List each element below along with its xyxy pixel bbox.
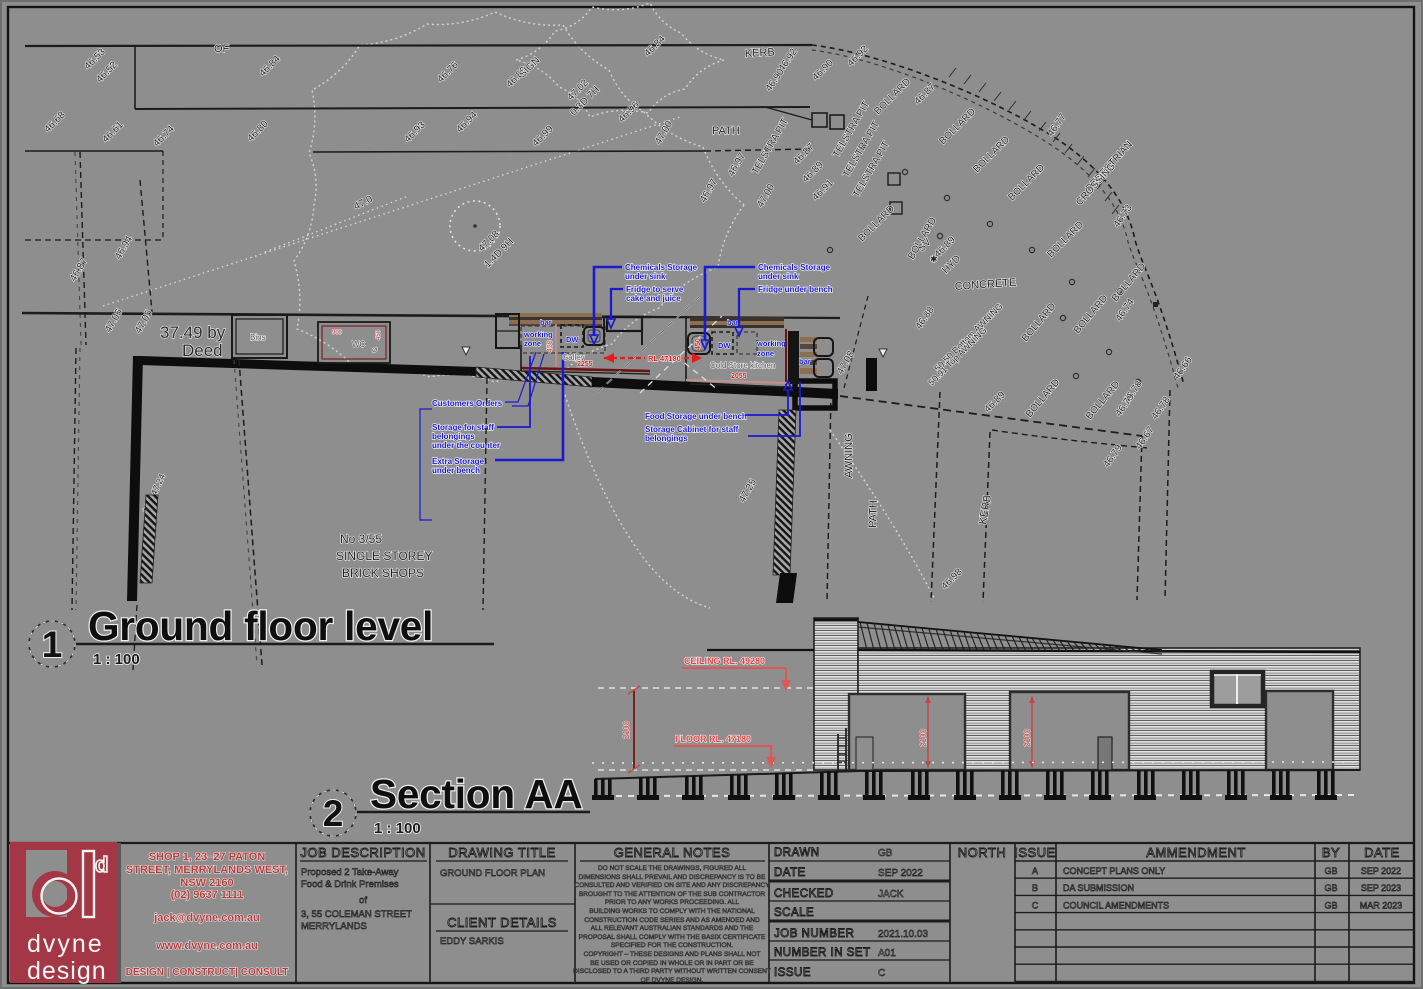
svg-text:AWNING: AWNING xyxy=(843,433,855,478)
svg-text:BY: BY xyxy=(1322,845,1340,860)
svg-text:STREET, MERRYLANDS WEST,: STREET, MERRYLANDS WEST, xyxy=(126,864,288,876)
svg-text:under bench: under bench xyxy=(432,466,480,475)
svg-text:NSW 2160: NSW 2160 xyxy=(180,877,233,889)
svg-text:bar: bar xyxy=(727,318,739,327)
svg-text:DATE: DATE xyxy=(774,867,806,879)
svg-text:of: of xyxy=(359,895,367,906)
svg-text:ALL RELEVANT AUSTRALIAN STANDA: ALL RELEVANT AUSTRALIAN STANDARDS AND TH… xyxy=(591,925,754,932)
svg-text:Section AA: Section AA xyxy=(370,771,583,817)
svg-text:Bins: Bins xyxy=(250,333,266,342)
svg-text:37.49 by: 37.49 by xyxy=(160,323,226,342)
svg-text:2021.10.03: 2021.10.03 xyxy=(878,929,928,940)
svg-text:Fridge under bench: Fridge under bench xyxy=(758,285,833,294)
svg-text:1 : 100: 1 : 100 xyxy=(93,651,140,668)
svg-text:PATH: PATH xyxy=(712,125,740,137)
svg-text:DIMENSIONS SHALL PREVAIL AND D: DIMENSIONS SHALL PREVAIL AND DISCREPANCY… xyxy=(579,874,766,881)
svg-text:CLIENT DETAILS: CLIENT DETAILS xyxy=(447,915,557,930)
svg-text:SEP 2022: SEP 2022 xyxy=(1361,866,1401,876)
svg-text:SEP 2022: SEP 2022 xyxy=(878,868,923,879)
svg-text:NORTH: NORTH xyxy=(958,845,1006,860)
svg-text:Extra Storage: Extra Storage xyxy=(432,457,485,466)
svg-text:B: B xyxy=(1032,883,1038,893)
svg-text:(02) 9637 1111: (02) 9637 1111 xyxy=(171,889,244,901)
svg-text:WC: WC xyxy=(352,340,366,349)
svg-text:450: 450 xyxy=(695,338,702,350)
svg-text:SCALE: SCALE xyxy=(774,907,814,919)
svg-text:PATH: PATH xyxy=(867,500,880,528)
svg-text:NUMBER IN SET: NUMBER IN SET xyxy=(774,947,871,959)
svg-text:BUILDING WORKS TO COMPLY WITH: BUILDING WORKS TO COMPLY WITH THE NATION… xyxy=(589,908,755,915)
svg-text:bar: bar xyxy=(799,357,811,366)
svg-text:SEP 2023: SEP 2023 xyxy=(1361,883,1401,893)
svg-text:2100: 2100 xyxy=(622,721,631,739)
svg-text:Storage for staff: Storage for staff xyxy=(432,423,494,432)
svg-text:dvyne: dvyne xyxy=(27,930,104,958)
svg-text:450: 450 xyxy=(547,340,554,352)
svg-text:JOB NUMBER: JOB NUMBER xyxy=(774,928,854,940)
svg-text:Customers Orders: Customers Orders xyxy=(432,399,503,408)
svg-text:GROUND FLOOR PLAN: GROUND FLOOR PLAN xyxy=(440,868,545,879)
svg-text:GB: GB xyxy=(1324,883,1337,893)
svg-text:A01: A01 xyxy=(878,948,896,959)
svg-text:Food Storage under bench: Food Storage under bench xyxy=(645,412,747,421)
svg-text:GB: GB xyxy=(878,848,893,859)
svg-text:SINGLE STOREY: SINGLE STOREY xyxy=(336,549,432,563)
svg-text:under the counter: under the counter xyxy=(432,441,500,450)
svg-text:900: 900 xyxy=(332,330,343,336)
svg-text:KERB: KERB xyxy=(745,46,776,60)
svg-text:EDDY SARKIS: EDDY SARKIS xyxy=(440,936,504,947)
svg-text:Storage Cabinet for staff: Storage Cabinet for staff xyxy=(645,425,739,434)
svg-text:PRIOR TO ANY WORKS PROCEEDING.: PRIOR TO ANY WORKS PROCEEDING. ALL xyxy=(605,899,740,906)
svg-text:under sink: under sink xyxy=(758,272,799,281)
svg-text:ISSUE: ISSUE xyxy=(774,967,811,979)
svg-text:2255: 2255 xyxy=(577,361,593,368)
svg-text:JACK: JACK xyxy=(878,889,904,900)
svg-text:CEILING RL. 49280: CEILING RL. 49280 xyxy=(684,656,765,666)
svg-text:450: 450 xyxy=(376,329,382,340)
svg-text:DATE: DATE xyxy=(1364,845,1400,860)
svg-text:OF: OF xyxy=(214,43,230,55)
svg-text:RL 47180: RL 47180 xyxy=(648,354,681,363)
svg-text:cake and juice: cake and juice xyxy=(626,294,681,303)
svg-text:Fridge to serve: Fridge to serve xyxy=(626,285,684,294)
svg-text:MAR 2023: MAR 2023 xyxy=(1360,900,1403,910)
svg-text:ISSUE: ISSUE xyxy=(1014,845,1056,860)
svg-text:Proposed 2 Take-Away: Proposed 2 Take-Away xyxy=(301,867,399,878)
svg-text:Ground floor level: Ground floor level xyxy=(88,603,433,649)
svg-text:1 : 100: 1 : 100 xyxy=(374,820,421,837)
svg-text:bar: bar xyxy=(540,318,552,327)
svg-text:design: design xyxy=(27,957,107,985)
svg-text:C: C xyxy=(1032,900,1039,910)
svg-text:CONSULTED AND VERIFIED ON SITE: CONSULTED AND VERIFIED ON SITE AND ANY D… xyxy=(574,882,770,889)
svg-text:under sink: under sink xyxy=(625,272,666,281)
svg-text:Chemicals Storage: Chemicals Storage xyxy=(758,263,831,272)
svg-text:CHECKED: CHECKED xyxy=(774,888,834,900)
svg-text:zone: zone xyxy=(757,349,774,358)
svg-text:belongings: belongings xyxy=(645,434,688,443)
svg-text:2100: 2100 xyxy=(1023,729,1032,747)
svg-text:BRICK SHOPS: BRICK SHOPS xyxy=(342,566,424,580)
svg-text:BE USED OR COPIED IN WHOLE OR: BE USED OR COPIED IN WHOLE OR IN PART OR… xyxy=(590,960,754,967)
svg-text:OF DVYNE DESIGN.: OF DVYNE DESIGN. xyxy=(641,977,704,984)
svg-text:No 3/55: No 3/55 xyxy=(340,532,382,546)
svg-text:working: working xyxy=(523,330,553,339)
svg-text:belongings: belongings xyxy=(432,432,475,441)
svg-text:FLOOR RL. 47180: FLOOR RL. 47180 xyxy=(675,734,751,744)
svg-text:A: A xyxy=(1032,866,1038,876)
svg-text:DISCLOSED TO A THIRD PARTY WIT: DISCLOSED TO A THIRD PARTY WITHOUT WRITT… xyxy=(573,968,771,975)
svg-text:Deed: Deed xyxy=(182,341,223,360)
svg-text:DRAWING TITLE: DRAWING TITLE xyxy=(448,845,556,860)
svg-text:Cold Store kitchen: Cold Store kitchen xyxy=(710,361,775,370)
svg-text:C: C xyxy=(878,968,885,979)
svg-text:1: 1 xyxy=(42,624,63,665)
svg-text:COUNCIL AMENDMENTS: COUNCIL AMENDMENTS xyxy=(1063,900,1169,910)
svg-text:MERRYLANDS: MERRYLANDS xyxy=(301,921,367,932)
svg-text:Food & Drink Premises: Food & Drink Premises xyxy=(301,879,399,890)
svg-text:DO NOT SCALE THE DRAWINGS, FIG: DO NOT SCALE THE DRAWINGS, FIGURED ALL xyxy=(598,865,747,872)
svg-text:Chemicals Storage: Chemicals Storage xyxy=(625,263,698,272)
svg-text:DA SUBMISSION: DA SUBMISSION xyxy=(1063,883,1134,893)
svg-text:www.dvyne.com.au: www.dvyne.com.au xyxy=(155,940,258,952)
svg-text:SHOP 1, 23–27 PATON: SHOP 1, 23–27 PATON xyxy=(149,851,266,863)
svg-text:SPECIFIED FOR THE CONSTRUCTION: SPECIFIED FOR THE CONSTRUCTION. xyxy=(611,942,733,949)
svg-text:GB: GB xyxy=(1324,866,1337,876)
svg-text:COPYRIGHT – THESE DESIGNS AND: COPYRIGHT – THESE DESIGNS AND PLANS SHAL… xyxy=(584,951,761,958)
svg-text:JOB DESCRIPTION: JOB DESCRIPTION xyxy=(300,845,425,860)
svg-text:AMMENDMENT: AMMENDMENT xyxy=(1146,845,1246,860)
svg-text:GB: GB xyxy=(1324,900,1337,910)
svg-text:DRAWN: DRAWN xyxy=(774,847,820,859)
svg-text:jack@dvyne.com.au: jack@dvyne.com.au xyxy=(153,912,260,924)
svg-text:2055: 2055 xyxy=(731,373,747,380)
svg-text:working: working xyxy=(756,339,786,348)
svg-text:PROPOSAL SHALL COMPLY WITH THE: PROPOSAL SHALL COMPLY WITH THE BASIX CER… xyxy=(579,934,766,941)
svg-text:zone: zone xyxy=(524,339,541,348)
svg-text:⌀: ⌀ xyxy=(372,344,378,354)
svg-text:DW: DW xyxy=(566,335,579,344)
svg-text:GENERAL NOTES: GENERAL NOTES xyxy=(614,845,731,860)
svg-text:3, 55 COLEMAN STREET: 3, 55 COLEMAN STREET xyxy=(301,909,412,920)
svg-text:2100: 2100 xyxy=(919,729,928,747)
svg-text:BROUGHT TO THE ATTENTION OF TH: BROUGHT TO THE ATTENTION OF THE SUB CONT… xyxy=(579,891,766,898)
svg-text:CONCEPT PLANS ONLY: CONCEPT PLANS ONLY xyxy=(1063,866,1165,876)
svg-text:DESIGN | CONSTRUCT| CONSULT: DESIGN | CONSTRUCT| CONSULT xyxy=(126,967,289,978)
svg-text:2: 2 xyxy=(323,793,344,834)
svg-text:DW: DW xyxy=(718,341,731,350)
svg-text:CONSTRUCTION CODE SERIES AND A: CONSTRUCTION CODE SERIES AND AS AMENDED … xyxy=(584,917,760,924)
svg-text:d: d xyxy=(95,852,108,877)
